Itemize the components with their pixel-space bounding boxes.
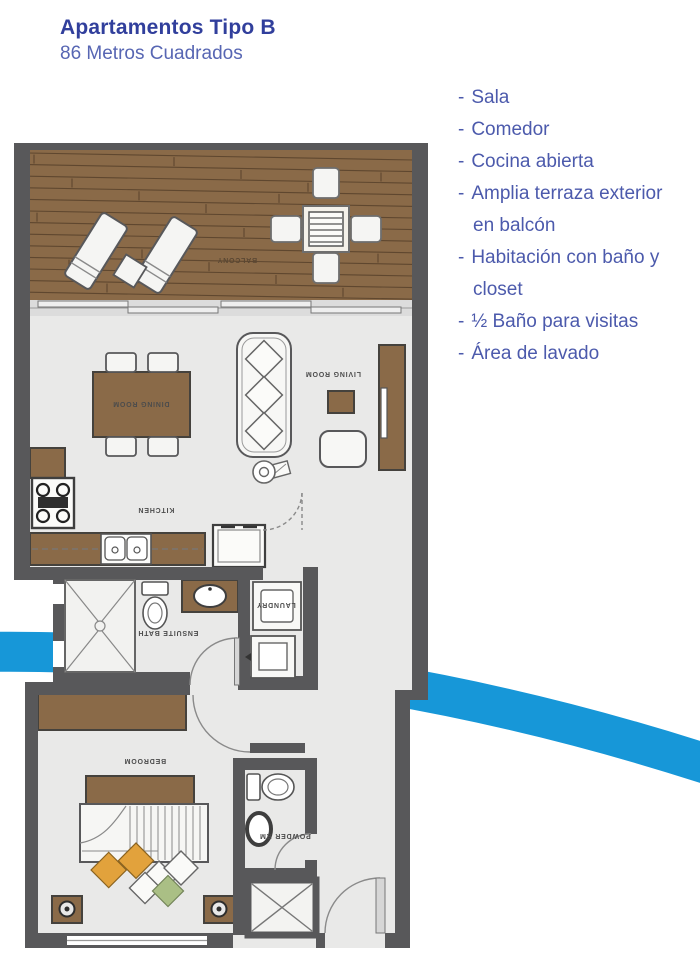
list-item: -Comedor — [458, 114, 686, 146]
label-powder: POWDER RM — [259, 832, 311, 839]
water-heater — [245, 636, 295, 678]
toilet-powder — [247, 774, 294, 800]
vanity-sink — [194, 585, 226, 607]
floorplan: BALCONY DINING ROOM LIVING ROOM KITCHEN … — [8, 143, 432, 953]
armchair — [320, 431, 366, 467]
powder-sink — [247, 813, 271, 845]
closet — [38, 692, 186, 730]
stove — [32, 478, 74, 528]
feature-label: Sala — [471, 87, 509, 108]
sofa — [237, 333, 291, 457]
label-dining: DINING ROOM — [112, 400, 169, 407]
bullet-dash: - — [458, 183, 464, 204]
bed-headboard — [86, 776, 194, 804]
coffee-table — [328, 391, 354, 413]
list-item: -Habitación con baño y closet — [458, 242, 686, 306]
brochure-page: { "page": { "title": "Apartamentos Tipo … — [0, 0, 700, 972]
entry-door-leaf — [376, 878, 385, 933]
label-living: LIVING ROOM — [305, 370, 361, 377]
fridge — [213, 525, 265, 567]
bullet-dash: - — [458, 311, 464, 332]
page-subtitle: 86 Metros Cuadrados — [60, 43, 276, 65]
kitchen-counter-left — [30, 448, 65, 478]
bullet-dash: - — [458, 119, 464, 140]
label-balcony: BALCONY — [217, 256, 257, 263]
feature-label: Amplia terraza exterior en balcón — [471, 183, 662, 236]
list-item: -Amplia terraza exterior en balcón — [458, 178, 686, 242]
feature-label: Comedor — [471, 119, 549, 140]
label-kitchen: KITCHEN — [138, 506, 175, 513]
bullet-dash: - — [458, 247, 464, 268]
feature-label: Área de lavado — [471, 343, 599, 364]
bullet-dash: - — [458, 87, 464, 108]
label-bedroom: BEDROOM — [124, 757, 166, 764]
feature-label: Habitación con baño y closet — [471, 247, 659, 300]
shower — [65, 580, 135, 672]
header: Apartamentos Tipo B 86 Metros Cuadrados — [60, 16, 276, 65]
label-ensuite: ENSUITE BATH — [138, 629, 199, 636]
list-item: -Área de lavado — [458, 338, 686, 370]
list-item: -Cocina abierta — [458, 146, 686, 178]
bullet-dash: - — [458, 151, 464, 172]
list-item: -Sala — [458, 82, 686, 114]
toilet-ensuite — [142, 582, 168, 629]
feature-label: Cocina abierta — [471, 151, 594, 172]
bullet-dash: - — [458, 343, 464, 364]
tv — [381, 388, 387, 438]
sliding-doors — [30, 300, 412, 316]
feature-list: -Sala -Comedor -Cocina abierta -Amplia t… — [458, 82, 686, 370]
list-item: -½ Baño para visitas — [458, 306, 686, 338]
label-laundry: LAUNDRY — [256, 601, 296, 608]
feature-label: ½ Baño para visitas — [471, 311, 638, 332]
page-title: Apartamentos Tipo B — [60, 16, 276, 40]
wardrobe — [248, 880, 316, 935]
balcony — [28, 149, 414, 300]
